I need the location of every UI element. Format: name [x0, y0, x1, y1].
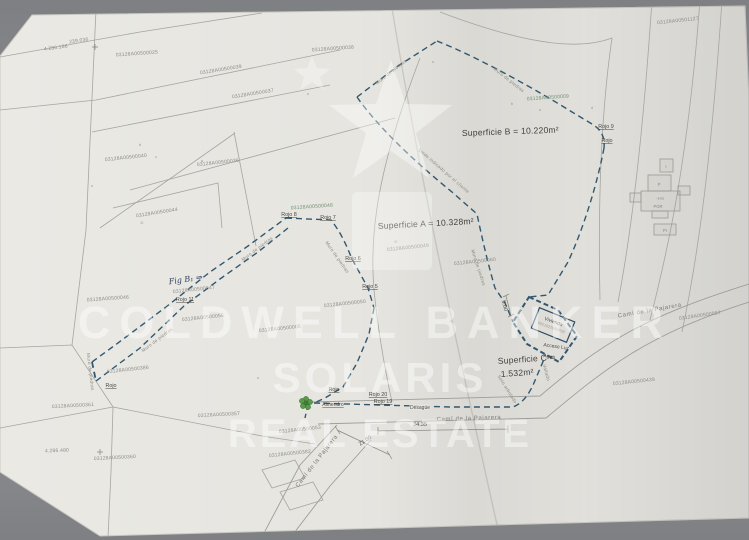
almendro-label: Almendro — [322, 402, 344, 408]
building-label: P — [658, 182, 661, 187]
building-outline — [678, 186, 690, 195]
cadastral-plan-photo: I P -I+II POR PI — [0, 0, 749, 540]
building-outline — [630, 193, 641, 202]
building-label: PI — [663, 228, 667, 233]
tiny-mark: c — [155, 154, 157, 159]
rojo-point-label: Rojo — [601, 138, 612, 144]
building-label: -I+II — [656, 196, 663, 201]
rojo-point-label: Rojo 7 — [320, 215, 336, 221]
desague-label: Desagüe — [410, 405, 430, 411]
building-outline — [652, 211, 668, 218]
rojo-point-label: Rojo — [105, 383, 116, 389]
watermark-tagline: REAL ESTATE — [228, 412, 532, 456]
tiny-mark: D — [141, 220, 144, 225]
plan-svg: I P -I+II POR PI — [0, 0, 749, 540]
rojo-point-label: Rojo 5 — [362, 284, 378, 290]
building-label: POR — [653, 204, 662, 209]
logo-square — [352, 192, 432, 270]
watermark-name: SOLARIS — [273, 354, 488, 401]
rojo-point-label: Rojo 8 — [281, 212, 297, 218]
watermark-brand: COLDWELL BANKER — [78, 297, 672, 348]
building-label: I — [665, 164, 666, 169]
tiny-mark: d — [591, 105, 593, 110]
rojo-point-label: Rojo 9 — [598, 124, 614, 130]
coord-label: 4.286.480 — [45, 448, 69, 455]
